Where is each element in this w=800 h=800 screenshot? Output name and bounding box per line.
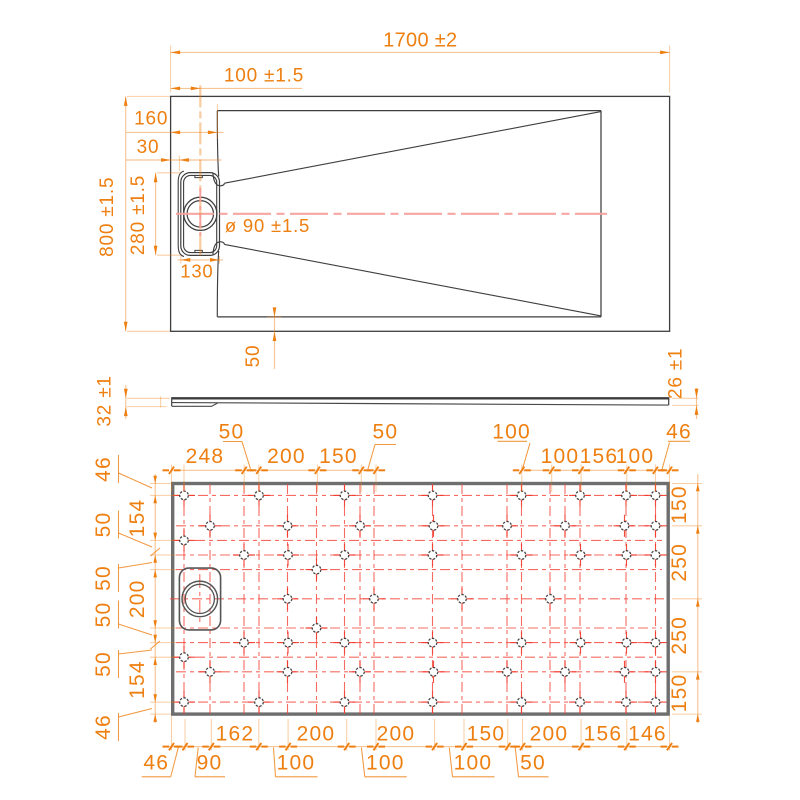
svg-text:100: 100 bbox=[277, 752, 316, 775]
svg-text:162: 162 bbox=[216, 723, 255, 746]
svg-text:32 ±1: 32 ±1 bbox=[95, 375, 116, 426]
svg-text:50: 50 bbox=[520, 752, 546, 775]
svg-text:130: 130 bbox=[180, 260, 213, 281]
svg-text:248: 248 bbox=[186, 445, 225, 468]
svg-text:160: 160 bbox=[134, 109, 168, 130]
svg-text:30: 30 bbox=[137, 137, 160, 158]
svg-text:150: 150 bbox=[319, 445, 358, 468]
svg-text:50: 50 bbox=[92, 602, 115, 628]
svg-text:100: 100 bbox=[616, 445, 655, 468]
svg-text:100: 100 bbox=[541, 445, 580, 468]
svg-text:280 ±1.5: 280 ±1.5 bbox=[128, 175, 149, 255]
svg-text:50: 50 bbox=[219, 421, 245, 444]
svg-text:100: 100 bbox=[492, 421, 531, 444]
svg-text:50: 50 bbox=[92, 565, 115, 591]
svg-text:50: 50 bbox=[373, 421, 399, 444]
svg-text:250: 250 bbox=[668, 616, 691, 655]
svg-text:250: 250 bbox=[668, 543, 691, 582]
svg-text:156: 156 bbox=[580, 445, 619, 468]
svg-text:800 ±1.5: 800 ±1.5 bbox=[97, 177, 118, 257]
svg-text:46: 46 bbox=[143, 752, 169, 775]
svg-text:156: 156 bbox=[584, 723, 623, 746]
svg-text:46: 46 bbox=[666, 421, 692, 444]
svg-text:200: 200 bbox=[377, 723, 416, 746]
svg-text:1700 ±2: 1700 ±2 bbox=[383, 30, 457, 52]
svg-text:50: 50 bbox=[92, 651, 115, 677]
svg-text:100: 100 bbox=[366, 752, 405, 775]
svg-text:ø 90 ±1.5: ø 90 ±1.5 bbox=[225, 215, 310, 236]
svg-text:200: 200 bbox=[126, 579, 149, 618]
svg-text:150: 150 bbox=[668, 485, 691, 524]
svg-text:150: 150 bbox=[668, 674, 691, 713]
svg-text:200: 200 bbox=[267, 445, 306, 468]
svg-text:46: 46 bbox=[92, 714, 115, 740]
svg-text:146: 146 bbox=[628, 723, 667, 746]
svg-text:50: 50 bbox=[92, 512, 115, 538]
svg-text:154: 154 bbox=[126, 499, 149, 538]
svg-text:154: 154 bbox=[126, 660, 149, 699]
svg-text:150: 150 bbox=[467, 723, 506, 746]
svg-text:50: 50 bbox=[243, 345, 264, 368]
svg-text:200: 200 bbox=[530, 723, 569, 746]
svg-text:46: 46 bbox=[92, 456, 115, 482]
svg-text:26 ±1: 26 ±1 bbox=[666, 348, 687, 399]
svg-text:90: 90 bbox=[197, 752, 223, 775]
svg-text:100: 100 bbox=[454, 752, 493, 775]
svg-text:100 ±1.5: 100 ±1.5 bbox=[224, 66, 304, 87]
svg-text:200: 200 bbox=[297, 723, 336, 746]
